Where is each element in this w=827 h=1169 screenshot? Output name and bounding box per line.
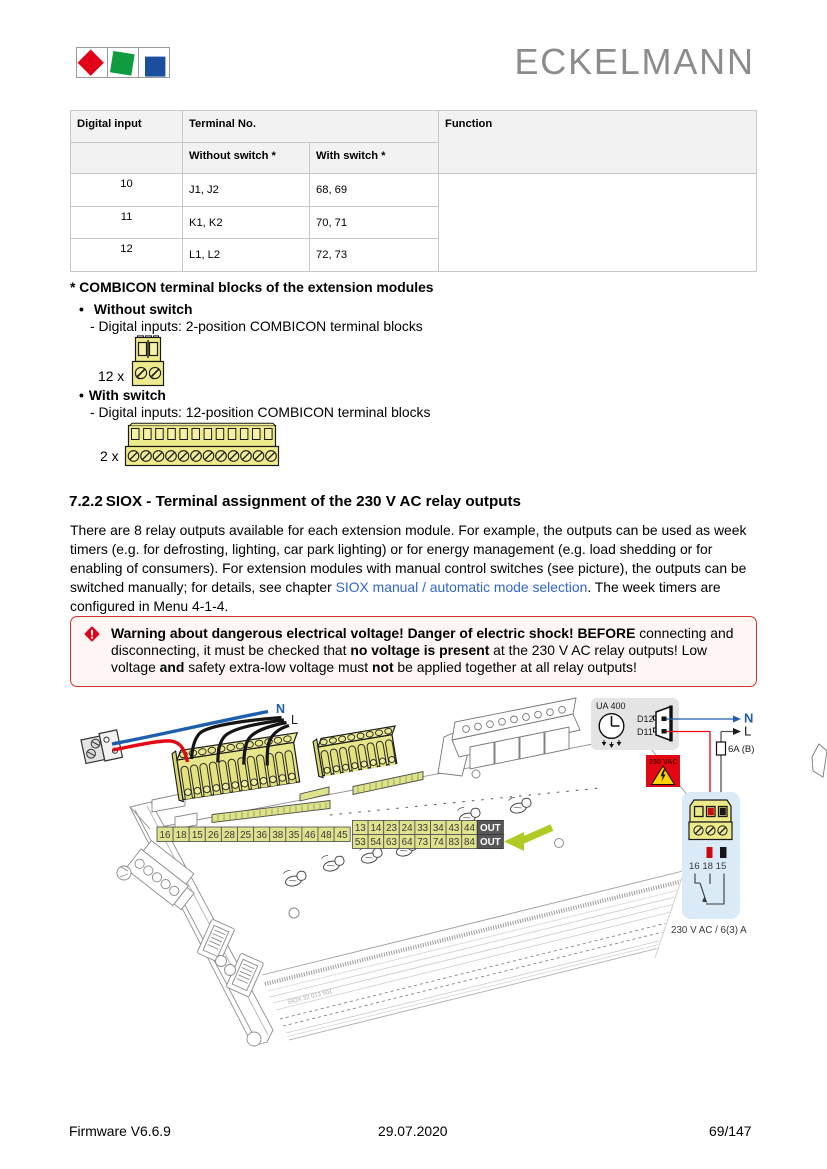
svg-text:36: 36 bbox=[256, 830, 267, 841]
svg-text:64: 64 bbox=[402, 837, 413, 848]
svg-text:48: 48 bbox=[321, 830, 332, 841]
svg-text:16 18 15: 16 18 15 bbox=[689, 861, 726, 872]
svg-text:33: 33 bbox=[417, 823, 428, 834]
svg-text:84: 84 bbox=[464, 837, 475, 848]
svg-text:34: 34 bbox=[433, 823, 444, 834]
svg-text:83: 83 bbox=[448, 837, 459, 848]
svg-text:45: 45 bbox=[337, 830, 348, 841]
svg-text:L: L bbox=[291, 713, 298, 727]
svg-text:35: 35 bbox=[288, 830, 299, 841]
svg-text:14: 14 bbox=[370, 823, 381, 834]
svg-text:16: 16 bbox=[160, 830, 171, 841]
svg-text:18: 18 bbox=[176, 830, 187, 841]
svg-text:74: 74 bbox=[433, 837, 444, 848]
svg-text:N: N bbox=[276, 702, 285, 716]
svg-text:13: 13 bbox=[355, 823, 366, 834]
svg-text:73: 73 bbox=[417, 837, 428, 848]
svg-text:43: 43 bbox=[448, 823, 459, 834]
svg-text:46: 46 bbox=[305, 830, 316, 841]
svg-text:230 V AC / 6(3) A: 230 V AC / 6(3) A bbox=[671, 925, 747, 936]
svg-text:44: 44 bbox=[464, 823, 475, 834]
svg-text:OUT: OUT bbox=[480, 837, 501, 848]
svg-text:OUT: OUT bbox=[480, 823, 501, 834]
svg-text:UA 400: UA 400 bbox=[596, 701, 626, 711]
svg-text:53: 53 bbox=[355, 837, 366, 848]
svg-text:54: 54 bbox=[370, 837, 381, 848]
svg-text:6A (B): 6A (B) bbox=[728, 744, 754, 755]
svg-text:63: 63 bbox=[386, 837, 397, 848]
svg-text:23: 23 bbox=[386, 823, 397, 834]
svg-text:25: 25 bbox=[240, 830, 251, 841]
svg-text:15: 15 bbox=[192, 830, 203, 841]
svg-text:24: 24 bbox=[402, 823, 413, 834]
svg-text:28: 28 bbox=[224, 830, 235, 841]
svg-text:D11: D11 bbox=[637, 727, 653, 737]
svg-text:230 VAC: 230 VAC bbox=[649, 757, 678, 766]
svg-text:L: L bbox=[744, 724, 751, 739]
svg-text:38: 38 bbox=[272, 830, 283, 841]
svg-text:D12: D12 bbox=[637, 714, 654, 724]
svg-text:26: 26 bbox=[208, 830, 219, 841]
